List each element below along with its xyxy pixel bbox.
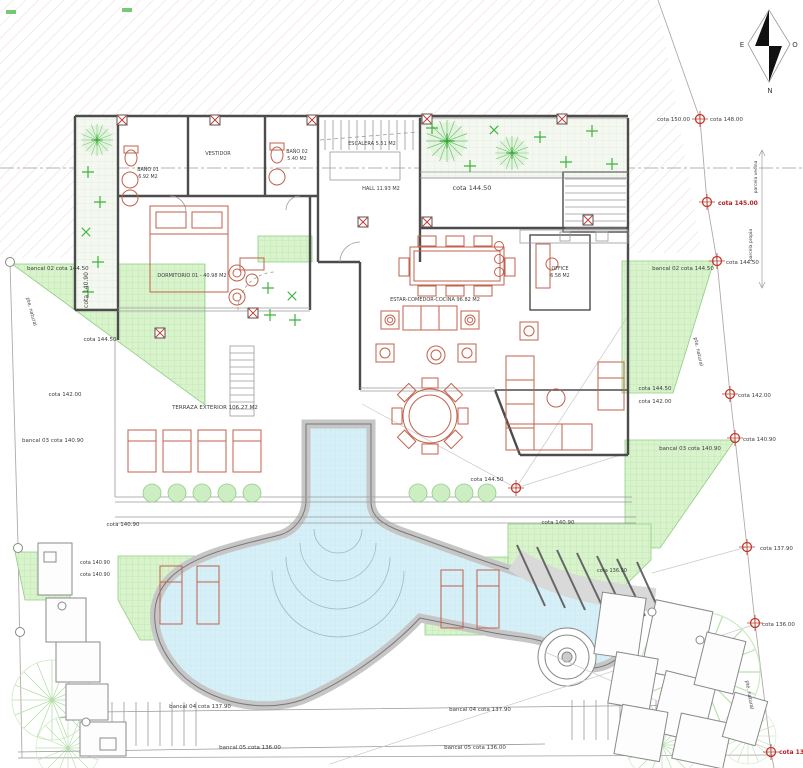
- compass-north-arrow: E O N: [740, 10, 798, 95]
- stair-right-treads: [565, 179, 626, 228]
- label-cota-14090-low-b: cota 140.90: [80, 572, 110, 578]
- side-table: [229, 265, 245, 281]
- sink: [122, 172, 138, 188]
- sofa-set: [376, 306, 479, 364]
- floor-plan-drawing: E O N BAÑO 01 6.92 M2 VESTIDOR BAÑO 02 5…: [0, 0, 803, 768]
- label-cota-14090-deck-left: cota 140.90: [107, 522, 140, 528]
- label-boundary-upper: parcela vecina: [753, 160, 759, 193]
- label-cota-14090-deck-right: cota 140.90: [542, 520, 575, 526]
- round-table: [392, 378, 468, 454]
- label-cota-13790-rmark: cota 137.90: [760, 546, 793, 552]
- label-cota-13690: cota 136.90: [597, 568, 627, 574]
- label-terraza: TERRAZA EXTERIOR 106.27 M2: [171, 405, 258, 411]
- label-cota-14090-vertical: cota 140.90: [83, 272, 90, 308]
- bank-right-bancal02: [622, 261, 714, 393]
- label-bano01-area: 6.92 M2: [138, 174, 157, 180]
- label-cota-13600-rmark: cota 136.00: [762, 622, 795, 628]
- label-boundary-lower: parcela propia: [748, 229, 754, 262]
- label-bano01-name: BAÑO 01: [137, 166, 159, 173]
- label-dormitorio: DORMITORIO 01 - 40.98 M2: [157, 273, 226, 279]
- label-cota-14200-rbank: cota 142.00: [639, 399, 672, 405]
- label-pte-natural-left: pte. natural: [24, 297, 37, 327]
- label-bancal05-left: bancal 05 cota 136.00: [219, 745, 281, 751]
- compass-west: O: [792, 41, 798, 49]
- floor-plan-canvas: E O N BAÑO 01 6.92 M2 VESTIDOR BAÑO 02 5…: [0, 0, 803, 768]
- label-bancal02-right: bancal 02 cota 144.50: [652, 266, 714, 272]
- label-cota-14200-rmark: cota 142.00: [738, 393, 771, 399]
- label-estar: ESTAR-COMEDOR-COCINA 96.82 M2: [390, 297, 480, 303]
- side-table: [229, 289, 245, 305]
- spa-circle: [538, 628, 596, 686]
- label-office-name: OFFICE: [551, 266, 568, 272]
- label-cota-14450-terrace: cota 144.50: [471, 477, 504, 483]
- desk-chair: [246, 274, 258, 286]
- label-cota-150: cota 150.00: [657, 117, 690, 123]
- neighbour-buildings-right: [594, 592, 768, 768]
- label-vestidor: VESTIDOR: [205, 151, 231, 157]
- sink: [269, 169, 285, 185]
- label-bancal03-right: bancal 03 cota 140.90: [659, 446, 721, 452]
- label-cota-145: cota 145.00: [718, 200, 758, 207]
- label-cota-14450-top: cota 144.50: [453, 184, 492, 192]
- label-bancal02-left: bancal 02 cota 144.50: [27, 266, 89, 272]
- lounge-sofa: [506, 322, 624, 450]
- label-cota-14200-left: cota 142.00: [49, 392, 82, 398]
- label-bano02-name: BAÑO 02: [286, 148, 308, 155]
- office-desk: [536, 244, 550, 288]
- label-bancal04-left: bancal 04 cota 137.90: [169, 704, 231, 710]
- wc-02: [270, 143, 284, 163]
- label-cota-14450-rbank: cota 144.50: [639, 386, 672, 392]
- label-cota-13390: cota 133.90: [779, 749, 803, 756]
- compass-east: E: [740, 41, 744, 49]
- compass-north: N: [767, 87, 772, 95]
- building-inner-walls: [495, 172, 628, 390]
- label-bancal03-left: bancal 03 cota 140.90: [22, 438, 84, 444]
- label-office-area: 6.58 M2: [550, 273, 569, 279]
- label-cota-14090-rmark: cota 140.90: [743, 437, 776, 443]
- sink: [122, 190, 138, 206]
- label-cota-14450-left: cota 144.50: [84, 337, 117, 343]
- label-bancal04-right: bancal 04 cota 137.90: [449, 707, 511, 713]
- label-bano02-area: 5.40 M2: [287, 156, 306, 162]
- label-cota-148: cota 148.00: [710, 117, 743, 123]
- label-escalera: ESCALERA 5.51 M2: [348, 141, 396, 147]
- label-pte-natural-right: pte. natural: [692, 337, 704, 367]
- dining-table: [399, 236, 515, 296]
- label-bancal05-right: bancal 05 cota 136.00: [444, 745, 506, 751]
- label-cota-14090-low-a: cota 140.90: [80, 560, 110, 566]
- label-cota-14450-rmark: cota 144.50: [726, 260, 759, 266]
- terrace-loungers: [128, 430, 261, 472]
- wc-01: [124, 146, 138, 166]
- escalera-treads: [320, 120, 418, 180]
- label-hall: HALL 11.93 M2: [362, 186, 400, 192]
- boundary-dimension: [759, 150, 765, 288]
